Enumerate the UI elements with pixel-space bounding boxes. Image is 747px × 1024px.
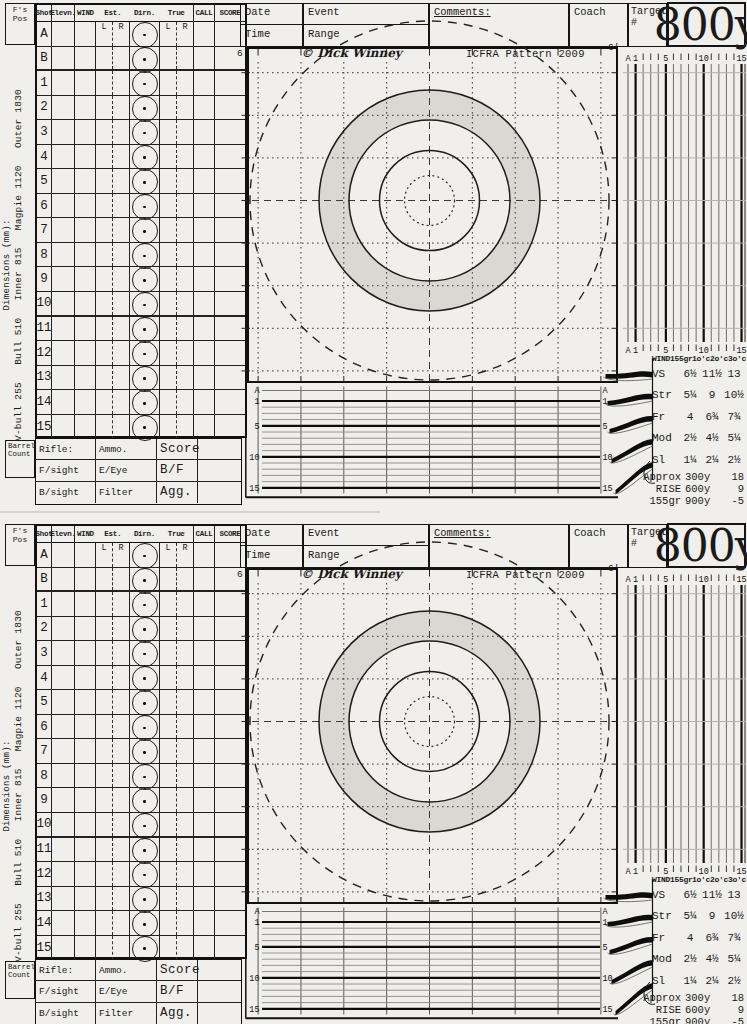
shot-label: 1 <box>37 592 52 616</box>
svg-text:A: A <box>603 386 609 396</box>
wind-footer-value: 9 <box>717 484 747 495</box>
call-cell <box>194 666 215 690</box>
wind-true-left-cell <box>160 592 177 616</box>
wind-est-right-cell <box>113 641 130 665</box>
target-plot-box <box>246 568 619 904</box>
elevation-header: Elevn. <box>52 5 75 21</box>
wind-true-right-cell <box>177 169 194 193</box>
wind-speed-label: Str <box>652 389 679 401</box>
wind-value: 2½ <box>723 975 745 987</box>
comments-box: Comments: <box>429 3 569 47</box>
wind-direction-cell <box>130 764 160 788</box>
entry-cell <box>198 482 240 503</box>
svg-text:15: 15 <box>736 54 746 64</box>
wind-est-left-cell <box>96 390 113 414</box>
wind-true-right-cell: R <box>177 543 194 567</box>
wind-title: WIND155gr <box>652 354 692 363</box>
wind-footer-range: 300y <box>681 993 717 1004</box>
wind-direction-cell <box>130 936 160 961</box>
score-row: 6 <box>37 715 245 740</box>
wind-strength-cell <box>75 641 96 665</box>
elevation-cell <box>52 641 75 665</box>
wind-true-left-cell <box>160 120 177 144</box>
wind-est-right-cell <box>113 47 130 70</box>
shot-label: 4 <box>37 666 52 690</box>
call-cell <box>194 390 215 414</box>
six-foot-right-label: 6' <box>608 563 619 574</box>
dimensions-label: Dimensions (mm): <box>2 610 13 962</box>
wind-table-header: WIND155gr1o'c2o'c3o'c <box>652 873 747 884</box>
call-cell <box>194 764 215 788</box>
wind-strength-cell <box>75 936 96 961</box>
wind-value: 13 <box>723 368 745 380</box>
wind-true-left-cell <box>160 715 177 739</box>
call-cell <box>194 543 215 567</box>
equipment-label: B/sight <box>36 482 96 503</box>
direction-circle <box>132 169 158 195</box>
shot-label: 7 <box>37 218 52 242</box>
fs-pos-label: F's Pos <box>13 5 27 23</box>
shot-label: 14 <box>37 911 52 935</box>
shot-label: 11 <box>37 317 52 341</box>
wind-est-right-cell <box>113 218 130 242</box>
wind-est-right-cell <box>113 366 130 390</box>
elevation-cell <box>52 764 75 788</box>
score-cell <box>215 267 245 291</box>
svg-text:5: 5 <box>663 575 668 585</box>
elevation-cell <box>52 218 75 242</box>
svg-text:15: 15 <box>603 1005 613 1015</box>
shot-label: 2 <box>37 96 52 120</box>
elevation-cell <box>52 317 75 341</box>
wind-value: 9 <box>701 389 723 401</box>
call-cell <box>194 788 215 812</box>
wind-est-left-cell <box>96 813 113 836</box>
wind-value: 2¼ <box>701 454 723 466</box>
event-range-box: Event Range <box>303 524 429 568</box>
score-cell <box>215 911 245 935</box>
score-table: ShotElevn.WINDEst.Dirn.TrueCALLSCOREALRL… <box>35 524 247 959</box>
score-cell <box>215 120 245 144</box>
score-row: 11 <box>37 838 245 863</box>
svg-text:10: 10 <box>603 974 613 984</box>
range-field: Range <box>304 25 428 46</box>
wind-true-right-cell <box>177 120 194 144</box>
wind-value: 6½ <box>679 368 701 380</box>
wind-est-right-cell <box>113 390 130 414</box>
barrel-count-box: Barrel Count <box>5 961 35 999</box>
direction-circle <box>132 218 158 244</box>
wind-est-left-cell <box>96 218 113 242</box>
wind-est-right-cell <box>113 243 130 267</box>
wind-est-left-cell <box>96 690 113 714</box>
wind-true-left-cell <box>160 764 177 788</box>
wind-speed-label: VS <box>652 368 679 380</box>
elevation-cell <box>52 543 75 567</box>
copyright-text: © Dick Winney <box>301 567 402 581</box>
pattern-text: ICFRA Pattern 2009 <box>466 48 585 60</box>
wind-est-left-cell: L <box>96 22 113 46</box>
equipment-label: B/F <box>157 981 198 1001</box>
wind-est-right-cell <box>113 194 130 218</box>
left-right-label: R <box>113 22 129 32</box>
score-row: 10 <box>37 813 245 838</box>
wind-strength-cell <box>75 764 96 788</box>
wind-true-left-cell <box>160 194 177 218</box>
wind-direction-cell <box>130 22 160 46</box>
direction-circle <box>132 96 158 122</box>
wind-est-right-cell <box>113 887 130 911</box>
wind-value: 13 <box>723 889 745 901</box>
barrel-count-line1: Barrel <box>8 442 34 450</box>
call-cell <box>194 715 215 739</box>
call-header: CALL <box>194 526 215 542</box>
wind-row: Sl1¼2¼2½ <box>652 449 747 471</box>
shot-label: 4 <box>37 145 52 169</box>
left-right-label: L <box>160 543 176 553</box>
wind-speed-label: Fr <box>652 932 679 944</box>
wind-col-header: 3o'c <box>728 875 746 884</box>
direction-circle <box>132 813 158 839</box>
wind-est-left-cell <box>96 415 113 440</box>
wind-direction-cell <box>130 543 160 567</box>
entry-cell <box>198 981 240 1001</box>
dimensions-values: V-bull 255Bull 510Inner 815Magpie 1120Ou… <box>13 610 24 962</box>
wind-strength-cell <box>75 145 96 169</box>
score-row: 1 <box>37 592 245 617</box>
wind-est-right-cell <box>113 317 130 341</box>
wind-direction-cell <box>130 267 160 291</box>
score-row: 6 <box>37 194 245 219</box>
wind-direction-cell <box>130 838 160 862</box>
svg-text:1: 1 <box>254 918 259 928</box>
equipment-label: Filter <box>96 482 157 503</box>
direction-circle <box>132 22 158 48</box>
elevation-cell <box>52 887 75 911</box>
wind-direction-cell <box>130 813 160 836</box>
fs-pos-label: F's Pos <box>13 526 27 544</box>
wind-speed-label: Fr <box>652 411 679 423</box>
svg-text:15: 15 <box>736 575 746 585</box>
equipment-table: Rifle:Ammo.ScoreF/sightE/EyeB/FB/sightFi… <box>35 959 242 1024</box>
svg-text:A: A <box>254 907 260 917</box>
equipment-label: E/Eye <box>96 460 157 480</box>
wind-value: 1¼ <box>679 454 701 466</box>
score-cell <box>215 592 245 616</box>
svg-text:1: 1 <box>633 575 638 585</box>
equipment-row: B/sightFilterAgg. <box>36 1003 241 1024</box>
elevation-cell <box>52 390 75 414</box>
wind-true-left-cell: L <box>160 543 177 567</box>
dimensions-label: Dimensions (mm): <box>2 89 13 441</box>
shot-label: 9 <box>37 788 52 812</box>
wind-footer-value: -5 <box>717 1017 747 1024</box>
wind-direction-cell <box>130 911 160 935</box>
wind-footer-label: Approx <box>629 472 681 483</box>
wind-true-right-cell <box>177 592 194 616</box>
score-row: 9 <box>37 267 245 292</box>
call-cell <box>194 415 215 440</box>
wind-est-right-cell <box>113 666 130 690</box>
score-row: 12 <box>37 862 245 887</box>
scan-smudge <box>0 511 380 513</box>
wind-value: 6½ <box>679 889 701 901</box>
shot-label: 10 <box>37 813 52 836</box>
score-row: 15 <box>37 936 245 961</box>
wind-est-right-cell <box>113 96 130 120</box>
dimensions-note: Dimensions (mm): V-bull 255Bull 510Inner… <box>2 89 24 441</box>
left-right-label: L <box>96 543 112 553</box>
wind-direction-cell <box>130 862 160 886</box>
svg-text:10: 10 <box>699 54 709 64</box>
shot-label: A <box>37 22 52 46</box>
score-cell <box>215 838 245 862</box>
left-right-label: R <box>113 543 129 553</box>
wind-true-right-cell <box>177 690 194 714</box>
wind-est-left-cell <box>96 145 113 169</box>
wind-row: VS6½11½13 <box>652 363 747 385</box>
wind-true-right-cell <box>177 739 194 763</box>
equipment-label: B/F <box>157 460 198 480</box>
coach-box: Coach <box>569 524 628 568</box>
wind-direction-cell <box>130 96 160 120</box>
elevation-cell <box>52 120 75 144</box>
wind-est-right-cell <box>113 838 130 862</box>
wind-direction-cell <box>130 666 160 690</box>
call-cell <box>194 366 215 390</box>
direction-header: Dirn. <box>130 530 160 538</box>
elevation-cell <box>52 690 75 714</box>
wind-est-left-cell <box>96 267 113 291</box>
svg-text:15: 15 <box>603 484 613 494</box>
call-cell <box>194 71 215 95</box>
wind-true-right-cell <box>177 666 194 690</box>
wind-true-right-cell <box>177 366 194 390</box>
wind-strength-cell <box>75 169 96 193</box>
direction-circle <box>132 739 158 765</box>
wind-value: 7¾ <box>723 932 745 944</box>
wind-value: 6¾ <box>701 932 723 944</box>
wind-est-left-cell <box>96 243 113 267</box>
call-cell <box>194 911 215 935</box>
wind-row: Mod2½4½5¼ <box>652 949 747 971</box>
equipment-label: B/sight <box>36 1003 96 1024</box>
wind-strength-cell <box>75 243 96 267</box>
score-cell <box>215 145 245 169</box>
score-row: 13 <box>37 366 245 391</box>
score-cell <box>215 936 245 961</box>
wind-true-right-cell <box>177 145 194 169</box>
elevation-cell <box>52 47 75 70</box>
wind-est-right-cell <box>113 341 130 365</box>
wind-true-right-cell <box>177 788 194 812</box>
wind-true-right-cell <box>177 862 194 886</box>
wind-direction-cell <box>130 292 160 315</box>
wind-est-left-cell <box>96 194 113 218</box>
call-cell <box>194 887 215 911</box>
equipment-label: Agg. <box>157 1003 198 1024</box>
elevation-cell <box>52 366 75 390</box>
target-distance-value: 800y <box>654 527 747 565</box>
elevation-cell <box>52 71 75 95</box>
direction-circle <box>132 666 158 692</box>
svg-text:1: 1 <box>254 397 259 407</box>
svg-text:1: 1 <box>603 397 608 407</box>
score-row: 7 <box>37 218 245 243</box>
wind-est-left-cell <box>96 641 113 665</box>
shot-label: 12 <box>37 341 52 365</box>
left-right-label: L <box>96 22 112 32</box>
wind-est-right-cell <box>113 813 130 836</box>
wind-speed-label: Sl <box>652 975 679 987</box>
score-row: 8 <box>37 243 245 268</box>
dimension-value: Magpie 1120 <box>13 165 24 230</box>
direction-circle <box>132 47 158 73</box>
wind-true-left-cell <box>160 71 177 95</box>
call-cell <box>194 292 215 315</box>
wind-est-right-cell <box>113 267 130 291</box>
call-cell <box>194 120 215 144</box>
wind-est-left-cell <box>96 911 113 935</box>
true-wind-header: True <box>159 9 193 17</box>
wind-est-left-cell: L <box>96 543 113 567</box>
wind-true-right-cell <box>177 838 194 862</box>
call-cell <box>194 22 215 46</box>
entry-cell <box>198 960 240 980</box>
wind-est-left-cell <box>96 838 113 862</box>
wind-footer-value: -5 <box>717 496 747 507</box>
elevation-cell <box>52 145 75 169</box>
wind-true-right-cell <box>177 267 194 291</box>
wind-est-left-cell <box>96 936 113 961</box>
wind-est-right-cell <box>113 911 130 935</box>
score-row: 15 <box>37 415 245 440</box>
wind-strength-cell <box>75 267 96 291</box>
call-cell <box>194 568 215 591</box>
wind-strength-cell <box>75 194 96 218</box>
target-distance-box: 800y <box>667 523 746 568</box>
wind-true-left-cell <box>160 267 177 291</box>
score-row: 8 <box>37 764 245 789</box>
wind-value: 9 <box>701 910 723 922</box>
wind-speed-label: VS <box>652 889 679 901</box>
wind-est-right-cell <box>113 617 130 641</box>
wind-direction-cell <box>130 317 160 341</box>
elevation-cell <box>52 96 75 120</box>
wind-true-left-cell <box>160 317 177 341</box>
call-cell <box>194 169 215 193</box>
call-cell <box>194 862 215 886</box>
equipment-row: B/sightFilterAgg. <box>36 482 241 503</box>
wind-footer-label: 155gr <box>629 496 681 507</box>
score-cell <box>215 641 245 665</box>
dimension-value: Outer 1830 <box>13 89 24 148</box>
score-cell <box>215 317 245 341</box>
wind-true-left-cell <box>160 169 177 193</box>
wind-est-right-cell <box>113 292 130 315</box>
direction-circle <box>132 911 158 937</box>
wind-speed-label: Mod <box>652 953 679 965</box>
dimensions-note: Dimensions (mm): V-bull 255Bull 510Inner… <box>2 610 24 962</box>
wind-speed-label: Str <box>652 910 679 922</box>
wind-direction-cell <box>130 739 160 763</box>
date-time-box: Date Time <box>240 3 303 47</box>
wind-direction-cell <box>130 243 160 267</box>
wind-strength-cell <box>75 390 96 414</box>
copyright-text: © Dick Winney <box>301 46 402 60</box>
wind-footer-row: RISE600y9 <box>629 484 747 495</box>
wind-col-header: 2o'c <box>710 875 728 884</box>
event-field: Event <box>304 4 428 25</box>
elevation-cell <box>52 568 75 591</box>
direction-header: Dirn. <box>130 9 160 17</box>
wind-est-right-cell <box>113 862 130 886</box>
wind-est-left-cell <box>96 71 113 95</box>
wind-footer-value: 18 <box>717 993 747 1004</box>
call-cell <box>194 194 215 218</box>
elevation-cell <box>52 739 75 763</box>
time-field: Time <box>241 546 302 567</box>
wind-est-left-cell <box>96 617 113 641</box>
direction-circle <box>132 341 158 367</box>
coach-box: Coach <box>569 3 628 47</box>
svg-text:5: 5 <box>254 943 259 953</box>
wind-est-left-cell <box>96 739 113 763</box>
wind-strength-cell <box>75 96 96 120</box>
wind-est-right-cell <box>113 120 130 144</box>
wind-true-right-cell <box>177 764 194 788</box>
score-card: Dimensions (mm): V-bull 255Bull 510Inner… <box>0 521 747 1024</box>
wind-est-right-cell <box>113 739 130 763</box>
wind-true-right-cell <box>177 813 194 836</box>
wind-direction-cell <box>130 218 160 242</box>
shot-label: B <box>37 568 52 591</box>
shot-label: 12 <box>37 862 52 886</box>
wind-true-left-cell <box>160 641 177 665</box>
wind-strength-cell <box>75 292 96 315</box>
wind-strength-cell <box>75 218 96 242</box>
score-cell <box>215 788 245 812</box>
wind-strength-cell <box>75 887 96 911</box>
wind-true-left-cell <box>160 47 177 70</box>
dimension-value: Inner 815 <box>13 768 24 821</box>
wind-value: 2½ <box>723 454 745 466</box>
wind-header: WIND <box>75 9 96 17</box>
shot-label: A <box>37 543 52 567</box>
barrel-count-line1: Barrel <box>8 963 34 971</box>
shot-label: 8 <box>37 243 52 267</box>
wind-value: 4 <box>679 411 701 423</box>
wind-value: 11½ <box>701 889 723 901</box>
score-cell <box>215 292 245 315</box>
card-slot-bottom: Dimensions (mm): V-bull 255Bull 510Inner… <box>0 521 747 1024</box>
score-row: 14 <box>37 911 245 936</box>
wind-strength-cell <box>75 838 96 862</box>
wind-est-right-cell <box>113 764 130 788</box>
wind-direction-cell <box>130 617 160 641</box>
wind-est-right-cell <box>113 145 130 169</box>
score-row: 5 <box>37 690 245 715</box>
wind-true-left-cell <box>160 690 177 714</box>
shot-label: 2 <box>37 617 52 641</box>
wind-est-left-cell <box>96 341 113 365</box>
score-row: 9 <box>37 788 245 813</box>
wind-true-right-cell: R <box>177 22 194 46</box>
score-table-header: ShotElevn.WINDEst.Dirn.TrueCALLSCORE <box>37 5 245 22</box>
call-cell <box>194 243 215 267</box>
call-cell <box>194 838 215 862</box>
wind-value: 5¼ <box>679 910 701 922</box>
